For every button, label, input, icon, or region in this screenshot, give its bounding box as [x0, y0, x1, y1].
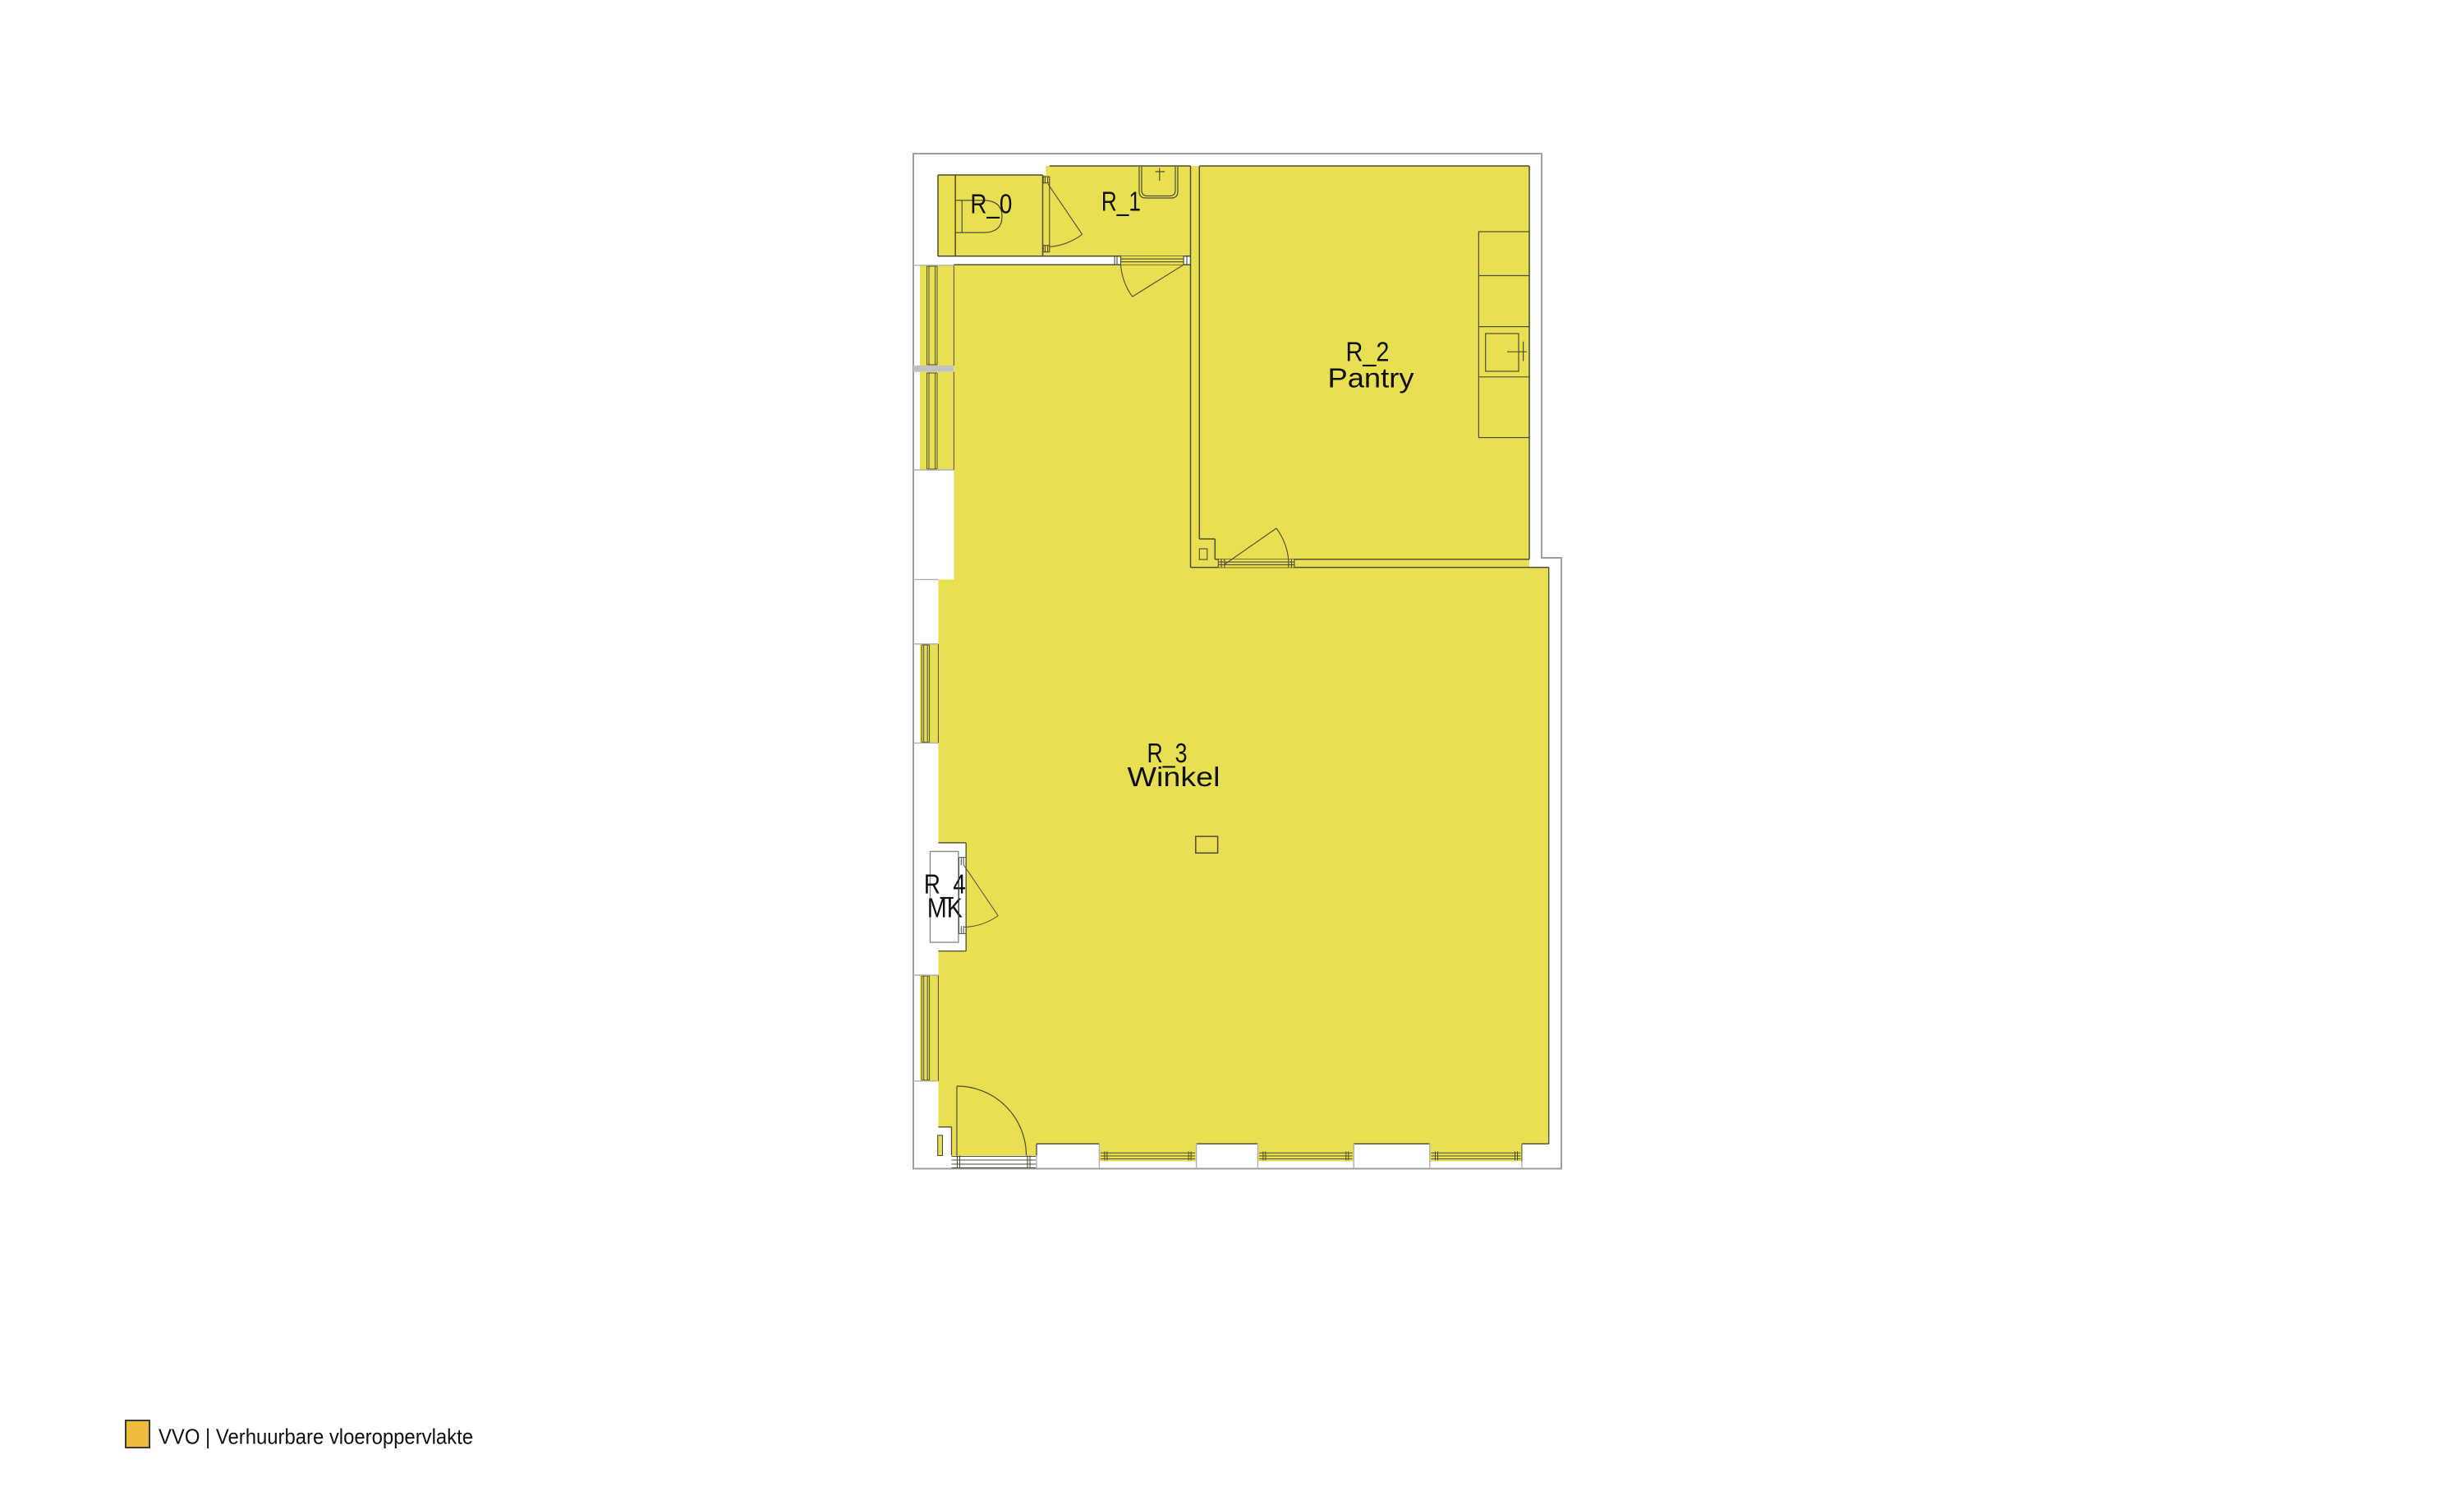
- svg-text:Pantry: Pantry: [1328, 362, 1415, 393]
- svg-text:R_1: R_1: [1101, 186, 1141, 216]
- svg-text:MK: MK: [927, 893, 963, 923]
- svg-text:Winkel: Winkel: [1128, 762, 1221, 792]
- svg-text:R_0: R_0: [970, 188, 1012, 219]
- svg-text:VVO | Verhuurbare vloeroppervl: VVO | Verhuurbare vloeroppervlakte: [159, 1425, 473, 1449]
